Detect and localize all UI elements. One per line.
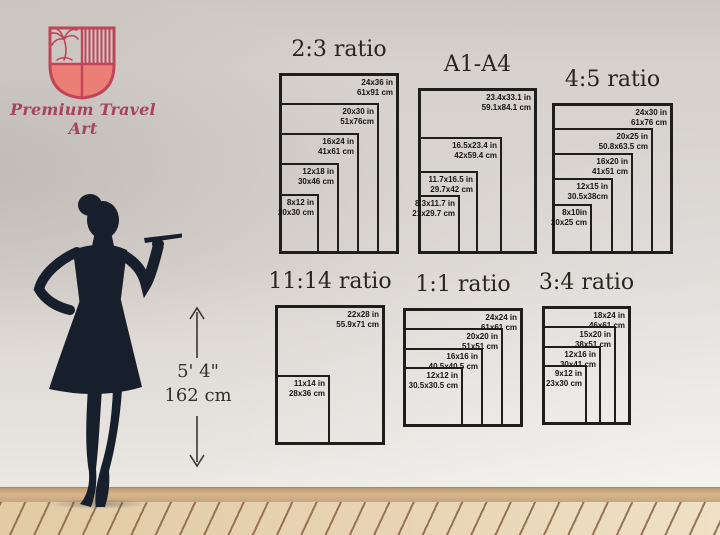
size-rect-8x12in: 8x12 in20x30 cm bbox=[279, 194, 319, 254]
size-chart-1-1-ratio: 1:1 ratio 24x24 in61x61 cm20x20 in51x51 … bbox=[403, 308, 523, 427]
height-label: 5' 4" 162 cm bbox=[156, 360, 240, 409]
size-label: 9x12 in23x30 cm bbox=[546, 369, 582, 389]
chart-title: 1:1 ratio bbox=[415, 272, 510, 297]
height-imperial: 5' 4" bbox=[156, 360, 240, 384]
extended-arm bbox=[121, 247, 158, 284]
size-label: 12x18 in30x46 cm bbox=[298, 167, 334, 187]
size-label: 12x12 in30.5x30.5 cm bbox=[409, 371, 458, 391]
size-label: 11x14 in28x36 cm bbox=[289, 379, 325, 399]
size-rect-12x12in: 12x12 in30.5x30.5 cm bbox=[403, 367, 463, 427]
size-chart-2-3-ratio: 2:3 ratio 24x36 in61x91 cm20x30 in51x76c… bbox=[279, 73, 399, 254]
chart-box: 18x24 in46x61 cm15x20 in38x51 cm12x16 in… bbox=[542, 306, 631, 425]
akimbo-arm bbox=[39, 252, 77, 310]
size-label: 16x24 in41x61 cm bbox=[318, 137, 354, 157]
chart-title: 4:5 ratio bbox=[565, 67, 660, 92]
chart-box: 23.4x33.1 in59.1x84.1 cm16.5x23.4 in42x5… bbox=[418, 88, 537, 254]
size-chart-4-5-ratio: 4:5 ratio 24x30 in61x76 cm20x25 in50.8x6… bbox=[552, 103, 673, 254]
size-rect-8x10in: 8x10in20x25 cm bbox=[552, 204, 592, 254]
chart-title: 11:14 ratio bbox=[268, 269, 391, 294]
size-label: 8x10in20x25 cm bbox=[551, 208, 587, 228]
palm-tree-icon bbox=[50, 28, 78, 60]
skirt bbox=[49, 300, 142, 394]
size-label: 8x12 in20x30 cm bbox=[278, 198, 314, 218]
chart-box: 24x36 in61x91 cm20x30 in51x76cm16x24 in4… bbox=[279, 73, 399, 254]
size-rect-9x12in: 9x12 in23x30 cm bbox=[542, 365, 587, 425]
height-metric: 162 cm bbox=[156, 384, 240, 408]
size-chart-11-14-ratio: 11:14 ratio 22x28 in55.9x71 cm11x14 in28… bbox=[275, 305, 385, 445]
size-rect-8.3x11.7in: 8.3x11.7 in21x29.7 cm bbox=[418, 195, 460, 254]
woman-silhouette bbox=[33, 192, 183, 510]
size-label: 8.3x11.7 in21x29.7 cm bbox=[412, 199, 455, 219]
size-label: 11.7x16.5 in29.7x42 cm bbox=[429, 175, 473, 195]
size-label: 16x20 in41x51 cm bbox=[592, 157, 628, 177]
chart-title: 2:3 ratio bbox=[291, 37, 386, 62]
size-label: 22x28 in55.9x71 cm bbox=[336, 310, 379, 330]
size-label: 20x25 in50.8x63.5 cm bbox=[599, 132, 648, 152]
chart-title: A1-A4 bbox=[444, 52, 511, 77]
chart-box: 24x30 in61x76 cm20x25 in50.8x63.5 cm16x2… bbox=[552, 103, 673, 254]
brand-name: Premium Travel Art bbox=[8, 100, 158, 138]
size-label: 24x30 in61x76 cm bbox=[631, 108, 667, 128]
size-chart-a1-a4: A1-A4 23.4x33.1 in59.1x84.1 cm16.5x23.4 … bbox=[418, 88, 537, 254]
size-rect-11x14in: 11x14 in28x36 cm bbox=[275, 375, 330, 445]
chart-title: 3:4 ratio bbox=[539, 270, 634, 295]
size-label: 12x15 in30.5x38cm bbox=[568, 182, 608, 202]
chart-box: 24x24 in61x61 cm20x20 in51x51 cm16x16 in… bbox=[403, 308, 523, 427]
size-label: 16.5x23.4 in42x59.4 cm bbox=[452, 141, 497, 161]
neck bbox=[92, 232, 114, 246]
chart-box: 22x28 in55.9x71 cm11x14 in28x36 cm bbox=[275, 305, 385, 445]
size-label: 24x36 in61x91 cm bbox=[357, 78, 393, 98]
size-label: 23.4x33.1 in59.1x84.1 cm bbox=[482, 93, 531, 113]
size-label: 20x30 in51x76cm bbox=[340, 107, 374, 127]
size-chart-3-4-ratio: 3:4 ratio 18x24 in46x61 cm15x20 in38x51 … bbox=[542, 306, 631, 425]
shield-stripes bbox=[86, 29, 110, 63]
shield-icon bbox=[47, 25, 117, 101]
